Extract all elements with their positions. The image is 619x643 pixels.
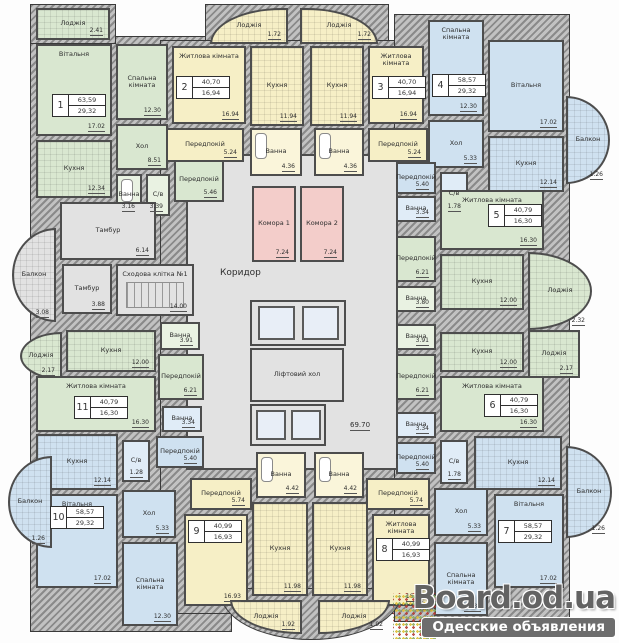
wc-apt7-area-value: 1.78 [448, 471, 461, 480]
bathroom-apt10-area-value: 3.34 [182, 419, 195, 428]
apartment-9-number: 9 [189, 521, 205, 542]
balcony-apt7-area-value: 1.26 [592, 525, 605, 534]
kitchen-apt10-label: Кухня [65, 458, 89, 465]
hall-apt7-label: Хол [453, 508, 470, 515]
storeroom-2-label: Комора 2 [304, 220, 340, 227]
loggia-apt6-label: Лоджія [540, 350, 569, 357]
wc-apt7-room: С/в1.78 [440, 440, 468, 484]
vestibule-2-area-value: 3.88 [92, 301, 105, 310]
living-room-apt1-area-value: 17.02 [88, 123, 105, 132]
apartment-7-total-area: 58,57 [515, 521, 551, 532]
vestibule-1-area-value: 6.14 [136, 247, 149, 256]
apartment-6-total-area: 40,79 [501, 395, 537, 406]
bathroom-apt4-room: Ванна3.34 [396, 196, 436, 222]
kitchen-apt6-label: Кухня [470, 348, 494, 355]
common-balcony-area-value: 3.08 [36, 309, 49, 318]
wc-apt1-label: С/в [151, 191, 166, 198]
apartment-8-living-area: 16,93 [393, 550, 429, 560]
kitchen-apt1-label: Кухня [62, 165, 86, 172]
bathroom-apt3-label: Ванна [327, 148, 352, 155]
balcony-apt7-room: Балкон1.26 [566, 446, 612, 538]
kitchen-apt1-room: Кухня12.34 [36, 140, 112, 198]
bathroom-apt11-room: Ванна3.91 [160, 322, 200, 350]
apartment-4-total-area: 58,57 [449, 75, 485, 86]
apartment-11-number: 11 [75, 397, 91, 418]
living-room-apt8-label: Житлова кімната [374, 521, 428, 536]
hallway-apt4-room: Передпокій5.40 [396, 162, 436, 194]
kitchen-apt2-room: Кухня11.94 [250, 46, 304, 126]
hallway-apt5-area-value: 6.21 [416, 269, 429, 278]
kitchen-apt7-room: Кухня12.14 [474, 436, 562, 490]
watermark-tagline: Одесские объявления [422, 618, 615, 637]
kitchen-apt2-label: Кухня [265, 82, 289, 89]
kitchen-apt3-area-value: 11.94 [340, 113, 357, 122]
apartment-6-living-area: 16,30 [501, 406, 537, 416]
vestibule-2-room: Тамбур3.88 [62, 264, 112, 314]
free-label-69-70: 69.70 [350, 421, 370, 431]
hall-apt7-area-value: 5.33 [468, 523, 481, 532]
hallway-apt11-room: Передпокій6.21 [158, 354, 204, 400]
wc-apt4-area-value: 1.78 [448, 203, 461, 212]
bathroom-apt6-area-value: 3.91 [416, 337, 429, 346]
bathroom-apt9-area-value: 4.42 [286, 485, 299, 494]
living-room-apt3-area-value: 16.94 [400, 111, 417, 120]
living-room-apt1-label: Вітальня [57, 51, 91, 58]
apartment-2-living-area: 16,94 [193, 88, 229, 98]
balcony-apt7-label: Балкон [575, 488, 604, 495]
bathroom-apt10-room: Ванна3.34 [162, 406, 202, 432]
hallway-apt4-area-value: 5.40 [416, 181, 429, 190]
storeroom-1-room: Комора 17.24 [252, 186, 296, 262]
apartment-7-table: 758,5729,32 [498, 520, 552, 543]
kitchen-apt7-area-value: 12.14 [538, 477, 555, 486]
loggia-apt11-area-value: 2.17 [42, 367, 55, 376]
balcony-apt10-label: Балкон [16, 498, 45, 505]
loggia-apt1-area-value: 2.41 [90, 27, 103, 36]
apartment-7-living-area: 29,32 [515, 532, 551, 542]
loggia-apt8-label: Лоджія [340, 613, 369, 620]
storeroom-1-label: Комора 1 [256, 220, 292, 227]
apartment-2-table: 240,7016,94 [176, 76, 230, 99]
kitchen-apt2-area-value: 11.94 [280, 113, 297, 122]
hallway-apt11-label: Передпокій [159, 373, 203, 380]
bathroom-apt8-area-value: 4.42 [344, 485, 357, 494]
wc-apt10-area-value: 1.28 [130, 469, 143, 478]
apartment-2-total-area: 40,70 [193, 77, 229, 88]
bedroom-apt1-area-value: 12.30 [144, 107, 161, 116]
apartment-6-table: 640,7916,30 [484, 394, 538, 417]
living-room-apt9-area-value: 16.93 [224, 593, 241, 602]
kitchen-apt8-area-value: 11.98 [344, 583, 361, 592]
common-balcony-room: Балкон3.08 [12, 228, 56, 322]
kitchen-apt4-room: Кухня12.14 [488, 136, 564, 192]
apartment-8-table: 840,9916,93 [376, 538, 430, 561]
hall-apt10-label: Хол [141, 510, 158, 517]
hallway-apt11-area-value: 6.21 [184, 387, 197, 396]
bathroom-apt4-area-value: 3.34 [416, 209, 429, 218]
loggia-apt9-label: Лоджія [252, 613, 281, 620]
balcony-apt4-area-value: 1.26 [590, 171, 603, 180]
balcony-apt10-area-value: 1.26 [32, 535, 45, 544]
apartment-2-number: 2 [177, 77, 193, 98]
hall-apt7-room: Хол5.33 [434, 488, 488, 536]
free-label-коридор: Коридор [220, 268, 261, 278]
living-room-apt1-room: Вітальня17.02 [36, 44, 112, 136]
hallway-apt3-area-value: 5.24 [408, 149, 421, 158]
loggia-apt6-area-value: 2.17 [560, 365, 573, 374]
kitchen-apt5-label: Кухня [470, 278, 494, 285]
apartment-5-number: 5 [489, 205, 505, 226]
bathroom-apt2-label: Ванна [264, 148, 289, 155]
hall-apt4-label: Хол [448, 140, 465, 147]
vestibule-2-label: Тамбур [73, 285, 102, 292]
common-balcony-label: Балкон [20, 271, 49, 278]
kitchen-apt9-label: Кухня [268, 545, 292, 552]
storeroom-2-room: Комора 27.24 [300, 186, 344, 262]
storeroom-1-area-value: 7.24 [276, 249, 289, 258]
apartment-10-total-area: 58,57 [67, 507, 103, 518]
vestibule-1-label: Тамбур [94, 227, 123, 234]
hallway-apt3-label: Передпокій [376, 141, 420, 148]
loggia-apt11-label: Лоджія [27, 352, 56, 359]
living-room-apt6-label: Житлова кімната [460, 383, 524, 390]
kitchen-apt6-area-value: 12.00 [500, 359, 517, 368]
apartment-5-total-area: 40,79 [505, 205, 541, 216]
loggia-apt2-area-value: 1.72 [268, 31, 281, 40]
bathroom-apt1-label: Ванна [117, 191, 142, 198]
living-room-apt11-area-value: 16.30 [132, 419, 149, 428]
bathroom-apt8-label: Ванна [327, 471, 352, 478]
kitchen-apt10-area-value: 12.14 [94, 477, 111, 486]
hallway-apt2-label: Передпокій [183, 141, 227, 148]
living-room-apt4-area-value: 17.02 [540, 119, 557, 128]
bathroom-apt7-room: Ванна3.34 [396, 412, 436, 438]
apartment-8-total-area: 40,99 [393, 539, 429, 550]
loggia-apt11-room: Лоджія2.17 [20, 332, 62, 380]
bathroom-apt9-label: Ванна [269, 471, 294, 478]
apartment-10-living-area: 29,32 [67, 518, 103, 528]
stairwell-label: Сходова клітка №1 [120, 271, 189, 278]
apartment-3-number: 3 [373, 77, 389, 98]
bathroom-apt2-room: Ванна4.36 [250, 128, 302, 176]
apartment-4-living-area: 29,32 [449, 86, 485, 96]
living-room-apt4-label: Вітальня [509, 82, 543, 89]
loggia-apt5-label: Лоджія [546, 287, 575, 294]
kitchen-apt4-area-value: 12.14 [540, 179, 557, 188]
bedroom-apt1-room: Спальна кімната12.30 [116, 44, 168, 120]
wc-apt1-room: С/в3.39 [146, 174, 170, 216]
bathroom-apt8-room: Ванна4.42 [314, 452, 364, 498]
bathroom-apt2-area-value: 4.36 [282, 163, 295, 172]
wc-apt7-label: С/в [447, 458, 462, 465]
bedroom-apt1-label: Спальна кімната [118, 75, 166, 90]
living-room-apt10-area-value: 17.02 [94, 575, 111, 584]
hall-apt10-room: Хол5.33 [122, 490, 176, 538]
hallway-apt5-label: Передпокій [394, 255, 438, 262]
bathroom-apt11-area-value: 3.91 [180, 337, 193, 346]
loggia-apt2-label: Лоджія [235, 22, 264, 29]
hall-apt4-area-value: 5.33 [464, 155, 477, 164]
bathroom-apt7-area-value: 3.34 [416, 425, 429, 434]
apartment-4-number: 4 [433, 75, 449, 96]
hall-apt1-area-value: 8.51 [148, 157, 161, 166]
kitchen-apt11-area-value: 12.00 [132, 359, 149, 368]
bathroom-apt6-room: Ванна3.91 [396, 324, 436, 350]
bedroom-apt10-label: Спальна кімната [124, 577, 176, 592]
hallway-apt10-area-value: 5.40 [184, 455, 197, 464]
bedroom-apt4-label: Спальна кімната [430, 27, 482, 42]
apartment-1-number: 1 [53, 95, 69, 116]
bathroom-apt5-room: Ванна3.80 [396, 286, 436, 312]
bathroom-apt3-area-value: 4.36 [344, 163, 357, 172]
bedroom-apt10-room: Спальна кімната12.30 [122, 542, 178, 626]
balcony-apt4-room: Балкон1.26 [566, 96, 610, 184]
apartment-3-total-area: 40,70 [389, 77, 425, 88]
bathroom-apt9-room: Ванна4.42 [256, 452, 306, 498]
loggia-apt5-room: Лоджія2.32 [528, 252, 592, 330]
balcony-apt10-room: Балкон1.26 [8, 456, 52, 548]
living-room-apt3-label: Житлова кімната [370, 53, 422, 68]
hallway-apt6-label: Передпокій [394, 373, 438, 380]
apartment-9-living-area: 16,93 [205, 532, 241, 542]
kitchen-apt8-room: Кухня11.98 [312, 502, 368, 596]
kitchen-apt9-area-value: 11.98 [284, 583, 301, 592]
hallway-apt1-room: Передпокій5.46 [174, 158, 224, 202]
hallway-apt2-area-value: 5.24 [224, 149, 237, 158]
storeroom-2-area-value: 7.24 [324, 249, 337, 258]
hallway-apt1-area-value: 5.46 [204, 189, 217, 198]
living-room-apt7-label: Вітальня [512, 501, 546, 508]
apartment-9-total-area: 40,99 [205, 521, 241, 532]
living-room-apt4-room: Вітальня17.02 [488, 40, 564, 132]
hallway-apt2-room: Передпокій5.24 [166, 128, 244, 162]
loggia-apt5-area-value: 2.32 [572, 317, 585, 326]
apartment-5-living-area: 16,30 [505, 216, 541, 226]
stairwell-area-value: 14.00 [170, 303, 187, 312]
apartment-11-living-area: 16,30 [91, 408, 127, 418]
apartment-1-living-area: 29,32 [69, 106, 105, 116]
hallway-apt9-room: Передпокій5.74 [190, 478, 252, 510]
living-room-apt2-area-value: 16.94 [222, 111, 239, 120]
apartment-4-table: 458,5729,32 [432, 74, 486, 97]
stairwell-room: Сходова клітка №114.00 [116, 264, 194, 316]
loggia-apt3-label: Лоджія [325, 22, 354, 29]
wc-apt4-label: С/в [447, 190, 462, 197]
kitchen-apt7-label: Кухня [506, 459, 530, 466]
loggia-apt8-room: Лоджія1.92 [318, 600, 390, 634]
hallway-apt1-label: Передпокій [177, 176, 221, 183]
apartment-6-number: 6 [485, 395, 501, 416]
loggia-apt3-area-value: 1.72 [358, 31, 371, 40]
bathroom-apt3-room: Ванна4.36 [314, 128, 364, 176]
loggia-apt6-room: Лоджія2.17 [528, 330, 580, 378]
hallway-apt6-room: Передпокій6.21 [396, 354, 436, 400]
living-room-apt5-area-value: 16.30 [520, 237, 537, 246]
apartment-11-table: 1140,7916,30 [74, 396, 128, 419]
hallway-apt10-room: Передпокій5.40 [156, 436, 204, 468]
apartment-1-table: 163,5929,32 [52, 94, 106, 117]
vestibule-1-room: Тамбур6.14 [60, 202, 156, 260]
elevator-hall-room: Ліфтовий хол [250, 348, 344, 402]
kitchen-apt9-room: Кухня11.98 [252, 502, 308, 596]
apartment-9-table: 940,9916,93 [188, 520, 242, 543]
watermark-site-text: Board.od.ua [413, 580, 615, 616]
hallway-apt3-room: Передпокій5.24 [368, 128, 428, 162]
hallway-apt7-area-value: 5.40 [416, 461, 429, 470]
bedroom-apt4-area-value: 12.30 [460, 103, 477, 112]
elevator-shafts-bottom-room [250, 404, 326, 446]
kitchen-apt11-label: Кухня [99, 347, 123, 354]
kitchen-apt5-area-value: 12.00 [500, 297, 517, 306]
apartment-3-table: 340,7016,94 [372, 76, 426, 99]
apartment-8-number: 8 [377, 539, 393, 560]
hallway-apt5-room: Передпокій6.21 [396, 236, 436, 282]
wc-apt1-area-value: 3.39 [150, 203, 163, 212]
kitchen-apt5-room: Кухня12.00 [440, 254, 524, 310]
hall-apt4-room: Хол5.33 [428, 120, 484, 168]
apartment-3-living-area: 16,94 [389, 88, 425, 98]
hallway-apt8-room: Передпокій5.74 [366, 478, 430, 510]
living-room-apt6-area-value: 16.30 [520, 419, 537, 428]
apartment-5-table: 540,7916,30 [488, 204, 542, 227]
apartment-10-table: 1058,5729,32 [50, 506, 104, 529]
loggia-apt1-room: Лоджія2.41 [36, 8, 110, 40]
apartment-1-total-area: 63,59 [69, 95, 105, 106]
kitchen-apt8-label: Кухня [328, 545, 352, 552]
hallway-apt9-area-value: 5.74 [232, 497, 245, 506]
kitchen-apt1-area-value: 12.34 [88, 185, 105, 194]
balcony-apt4-label: Балкон [574, 136, 603, 143]
living-room-apt2-label: Житлова кімната [177, 53, 241, 60]
loggia-apt1-label: Лоджія [59, 20, 88, 27]
bathroom-apt5-area-value: 3.80 [416, 299, 429, 308]
apartment-10-number: 10 [51, 507, 67, 528]
living-room-apt11-label: Житлова кімната [64, 383, 128, 390]
elevator-hall-label: Ліфтовий хол [272, 371, 322, 378]
hall-apt1-room: Хол8.51 [116, 124, 168, 170]
kitchen-apt6-room: Кухня12.00 [440, 332, 524, 372]
hallway-apt8-area-value: 5.74 [410, 497, 423, 506]
kitchen-apt4-label: Кухня [514, 160, 538, 167]
loggia-apt8-area-value: 1.92 [370, 621, 383, 630]
apartment-11-total-area: 40,79 [91, 397, 127, 408]
loggia-apt9-room: Лоджія1.92 [230, 600, 302, 634]
wc-apt10-label: С/в [129, 457, 144, 464]
kitchen-apt3-label: Кухня [325, 82, 349, 89]
elevator-shafts-top-room [250, 300, 346, 346]
bathroom-apt1-area-value: 3.16 [122, 203, 135, 212]
watermark: Board.od.ua Одесские объявления [413, 580, 615, 637]
hallway-apt6-area-value: 6.21 [416, 387, 429, 396]
floor-plan: Board.od.ua Одесские объявления Лоджія2.… [0, 0, 619, 643]
bedroom-apt10-area-value: 12.30 [154, 613, 171, 622]
hall-apt10-area-value: 5.33 [156, 525, 169, 534]
wc-apt10-room: С/в1.28 [122, 440, 150, 482]
loggia-apt9-area-value: 1.92 [282, 621, 295, 630]
hallway-apt7-room: Передпокій5.40 [396, 442, 436, 474]
kitchen-apt11-room: Кухня12.00 [66, 330, 156, 372]
bedroom-apt4-room: Спальна кімната12.30 [428, 20, 484, 116]
apartment-7-number: 7 [499, 521, 515, 542]
kitchen-apt3-room: Кухня11.94 [310, 46, 364, 126]
hall-apt1-label: Хол [134, 143, 151, 150]
